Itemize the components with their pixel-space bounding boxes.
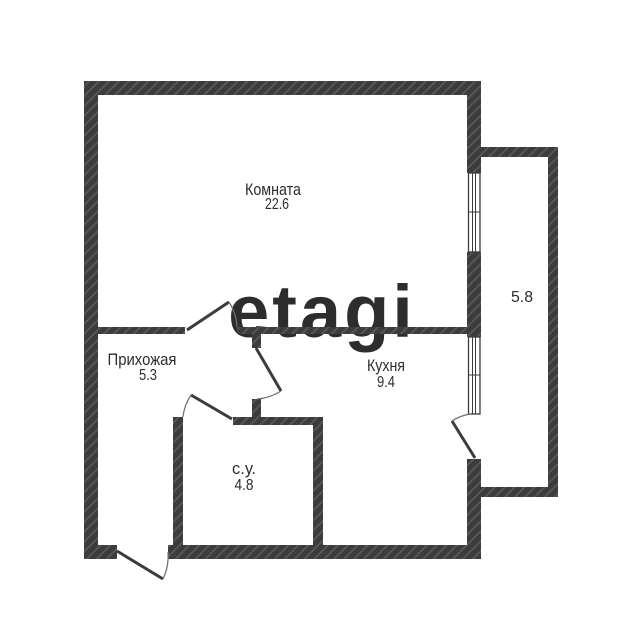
room-label-su: с.у. bbox=[232, 459, 256, 478]
door-balcony bbox=[452, 414, 475, 458]
wall-hall-kitchen-lower-stub bbox=[252, 399, 261, 417]
wall-room-kitchen-right bbox=[237, 327, 467, 334]
wall-su-top-corner bbox=[173, 417, 183, 425]
room-area-su: 4.8 bbox=[235, 477, 254, 494]
room-area-komnata: 22.6 bbox=[265, 196, 289, 213]
wall-room-hall-left bbox=[98, 327, 185, 334]
wall-outer-right-lower bbox=[467, 459, 481, 559]
door-kitchen bbox=[256, 348, 281, 399]
room-area-kuhnya: 9.4 bbox=[377, 374, 395, 391]
wall-outer-top bbox=[84, 81, 481, 95]
wall-balcony-top bbox=[481, 147, 558, 157]
door-entrance bbox=[117, 551, 168, 579]
wall-balcony-bottom bbox=[481, 487, 558, 497]
wall-balcony-right bbox=[548, 147, 558, 497]
floorplan-svg: etagi bbox=[0, 0, 640, 640]
wall-outer-bottom-main bbox=[168, 545, 481, 559]
wall-outer-left bbox=[84, 81, 98, 559]
wall-su-left bbox=[173, 425, 183, 545]
window-room bbox=[469, 173, 481, 252]
door-su bbox=[183, 395, 232, 419]
floorplan-canvas: etagi bbox=[0, 0, 640, 640]
window-kitchen bbox=[469, 337, 481, 414]
room-area-balkon: 5.8 bbox=[511, 289, 533, 306]
room-label-kuhnya: Кухня bbox=[367, 356, 405, 375]
wall-outer-bottom-left bbox=[84, 545, 117, 559]
wall-outer-right-upper bbox=[467, 81, 481, 173]
walls-balcony bbox=[481, 147, 558, 497]
wall-su-right bbox=[313, 425, 323, 545]
wall-su-top bbox=[233, 417, 323, 425]
room-area-prihozhaya: 5.3 bbox=[139, 367, 157, 384]
wall-hall-kitchen-upper-stub bbox=[252, 334, 261, 348]
wall-outer-right-middle bbox=[467, 252, 481, 337]
